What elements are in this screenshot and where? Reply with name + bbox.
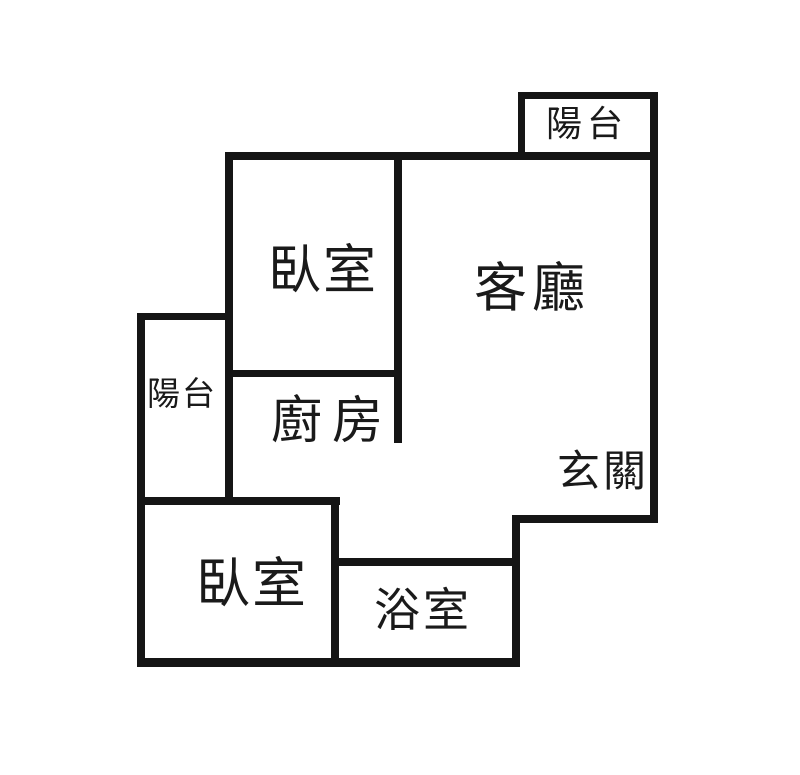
wall-middle-horizontal	[137, 497, 340, 505]
wall-bedroom-kitchen-divider	[225, 370, 402, 377]
wall-bedroom-lower-right	[331, 497, 339, 667]
floorplan-canvas: 陽台 臥室 客廳 陽台 廚房 玄關 臥室 浴室	[0, 0, 800, 775]
wall-outer-top	[225, 152, 658, 160]
wall-outer-left	[137, 313, 145, 667]
wall-balcony-left-top	[137, 313, 232, 320]
room-label-living-room: 客廳	[474, 262, 590, 315]
room-label-bathroom: 浴室	[374, 587, 472, 633]
room-label-entrance: 玄關	[557, 451, 649, 494]
wall-upper-left-vertical	[225, 152, 233, 505]
wall-outer-bottom	[137, 658, 520, 667]
room-label-balcony-left: 陽台	[147, 377, 217, 410]
wall-balcony-top-right-left	[518, 92, 525, 158]
wall-bathroom-top	[331, 558, 520, 566]
wall-step-vertical	[512, 515, 520, 667]
wall-outer-right	[650, 92, 658, 523]
wall-living-room-divider	[394, 152, 402, 443]
room-label-bedroom-upper: 臥室	[268, 244, 378, 297]
room-label-balcony-top-right: 陽台	[546, 106, 628, 142]
room-label-kitchen: 廚房	[271, 395, 393, 446]
wall-balcony-top-right-top	[518, 92, 658, 99]
wall-entrance-bottom	[512, 515, 658, 523]
room-label-bedroom-lower: 臥室	[196, 557, 308, 611]
